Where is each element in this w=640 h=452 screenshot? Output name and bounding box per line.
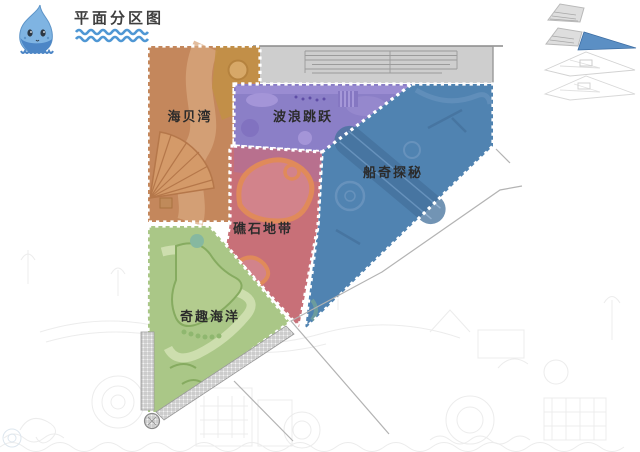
zone-label-reef-zone: 礁石地带 [233,221,293,237]
level-thumbnail-2 [546,28,636,50]
purple-top-band [236,86,408,94]
site-level-thumbnails [540,0,640,102]
title-underline-waves [74,27,154,43]
purple-blob-2 [241,119,259,137]
corner-wave-sketch [3,429,21,447]
poster: 海贝湾 波浪跳跃 船奇探秘 礁石地带 奇趣海洋 平面分区图 [0,0,640,452]
level-thumbnail-3 [545,52,635,76]
zone-label-ship-adventure: 船奇探秘 [363,165,423,181]
water-drop-mascot-icon [10,2,60,56]
level-thumbnail-1 [548,4,584,22]
highlighted-level-shape [578,32,636,50]
wave-pool-stripes [338,91,358,107]
entrance-strip [253,46,503,83]
boardwalk-left-strip [141,332,154,410]
page-title: 平面分区图 [74,10,164,27]
reef-wave-blob-2 [285,165,299,179]
purple-blob-1 [246,93,278,107]
round-pool [229,61,248,80]
reef-wave-blob-1 [239,160,312,221]
purple-blob-3 [298,131,312,145]
zone-label-fun-ocean: 奇趣海洋 [180,309,240,325]
orange-zone-path [189,46,206,222]
zone-label-wave-jump: 波浪跳跃 [273,109,333,125]
header: 平面分区图 [10,2,164,56]
level-thumbnail-4 [545,76,635,100]
zone-label-sea-shell-bay: 海贝湾 [167,109,212,125]
small-pond [190,234,204,248]
